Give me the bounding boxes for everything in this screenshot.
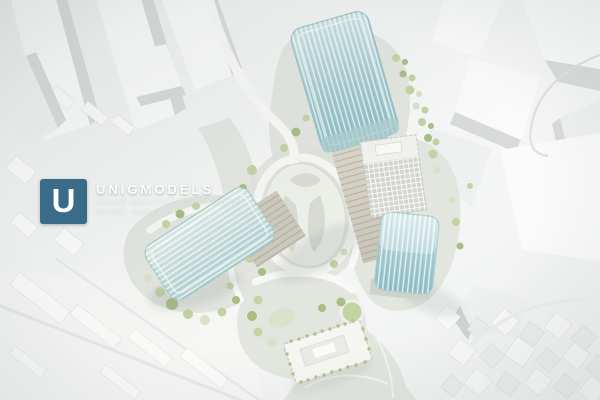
watermark-brand: UNIGMODELS <box>96 182 246 197</box>
watermark-text: UNIGMODELS SCALE ARCHITECTURAL MODEL MOD… <box>96 179 246 217</box>
photo-architectural-model: U UNIGMODELS SCALE ARCHITECTURAL MODEL M… <box>0 0 600 400</box>
logo-u-icon: U <box>52 184 76 217</box>
watermark-tagline-1: SCALE ARCHITECTURAL MODEL <box>96 200 246 207</box>
watermark-tagline-2: MODEL MAKING <box>96 210 246 217</box>
watermark: U UNIGMODELS SCALE ARCHITECTURAL MODEL M… <box>40 179 246 224</box>
watermark-logo: U <box>40 179 87 224</box>
